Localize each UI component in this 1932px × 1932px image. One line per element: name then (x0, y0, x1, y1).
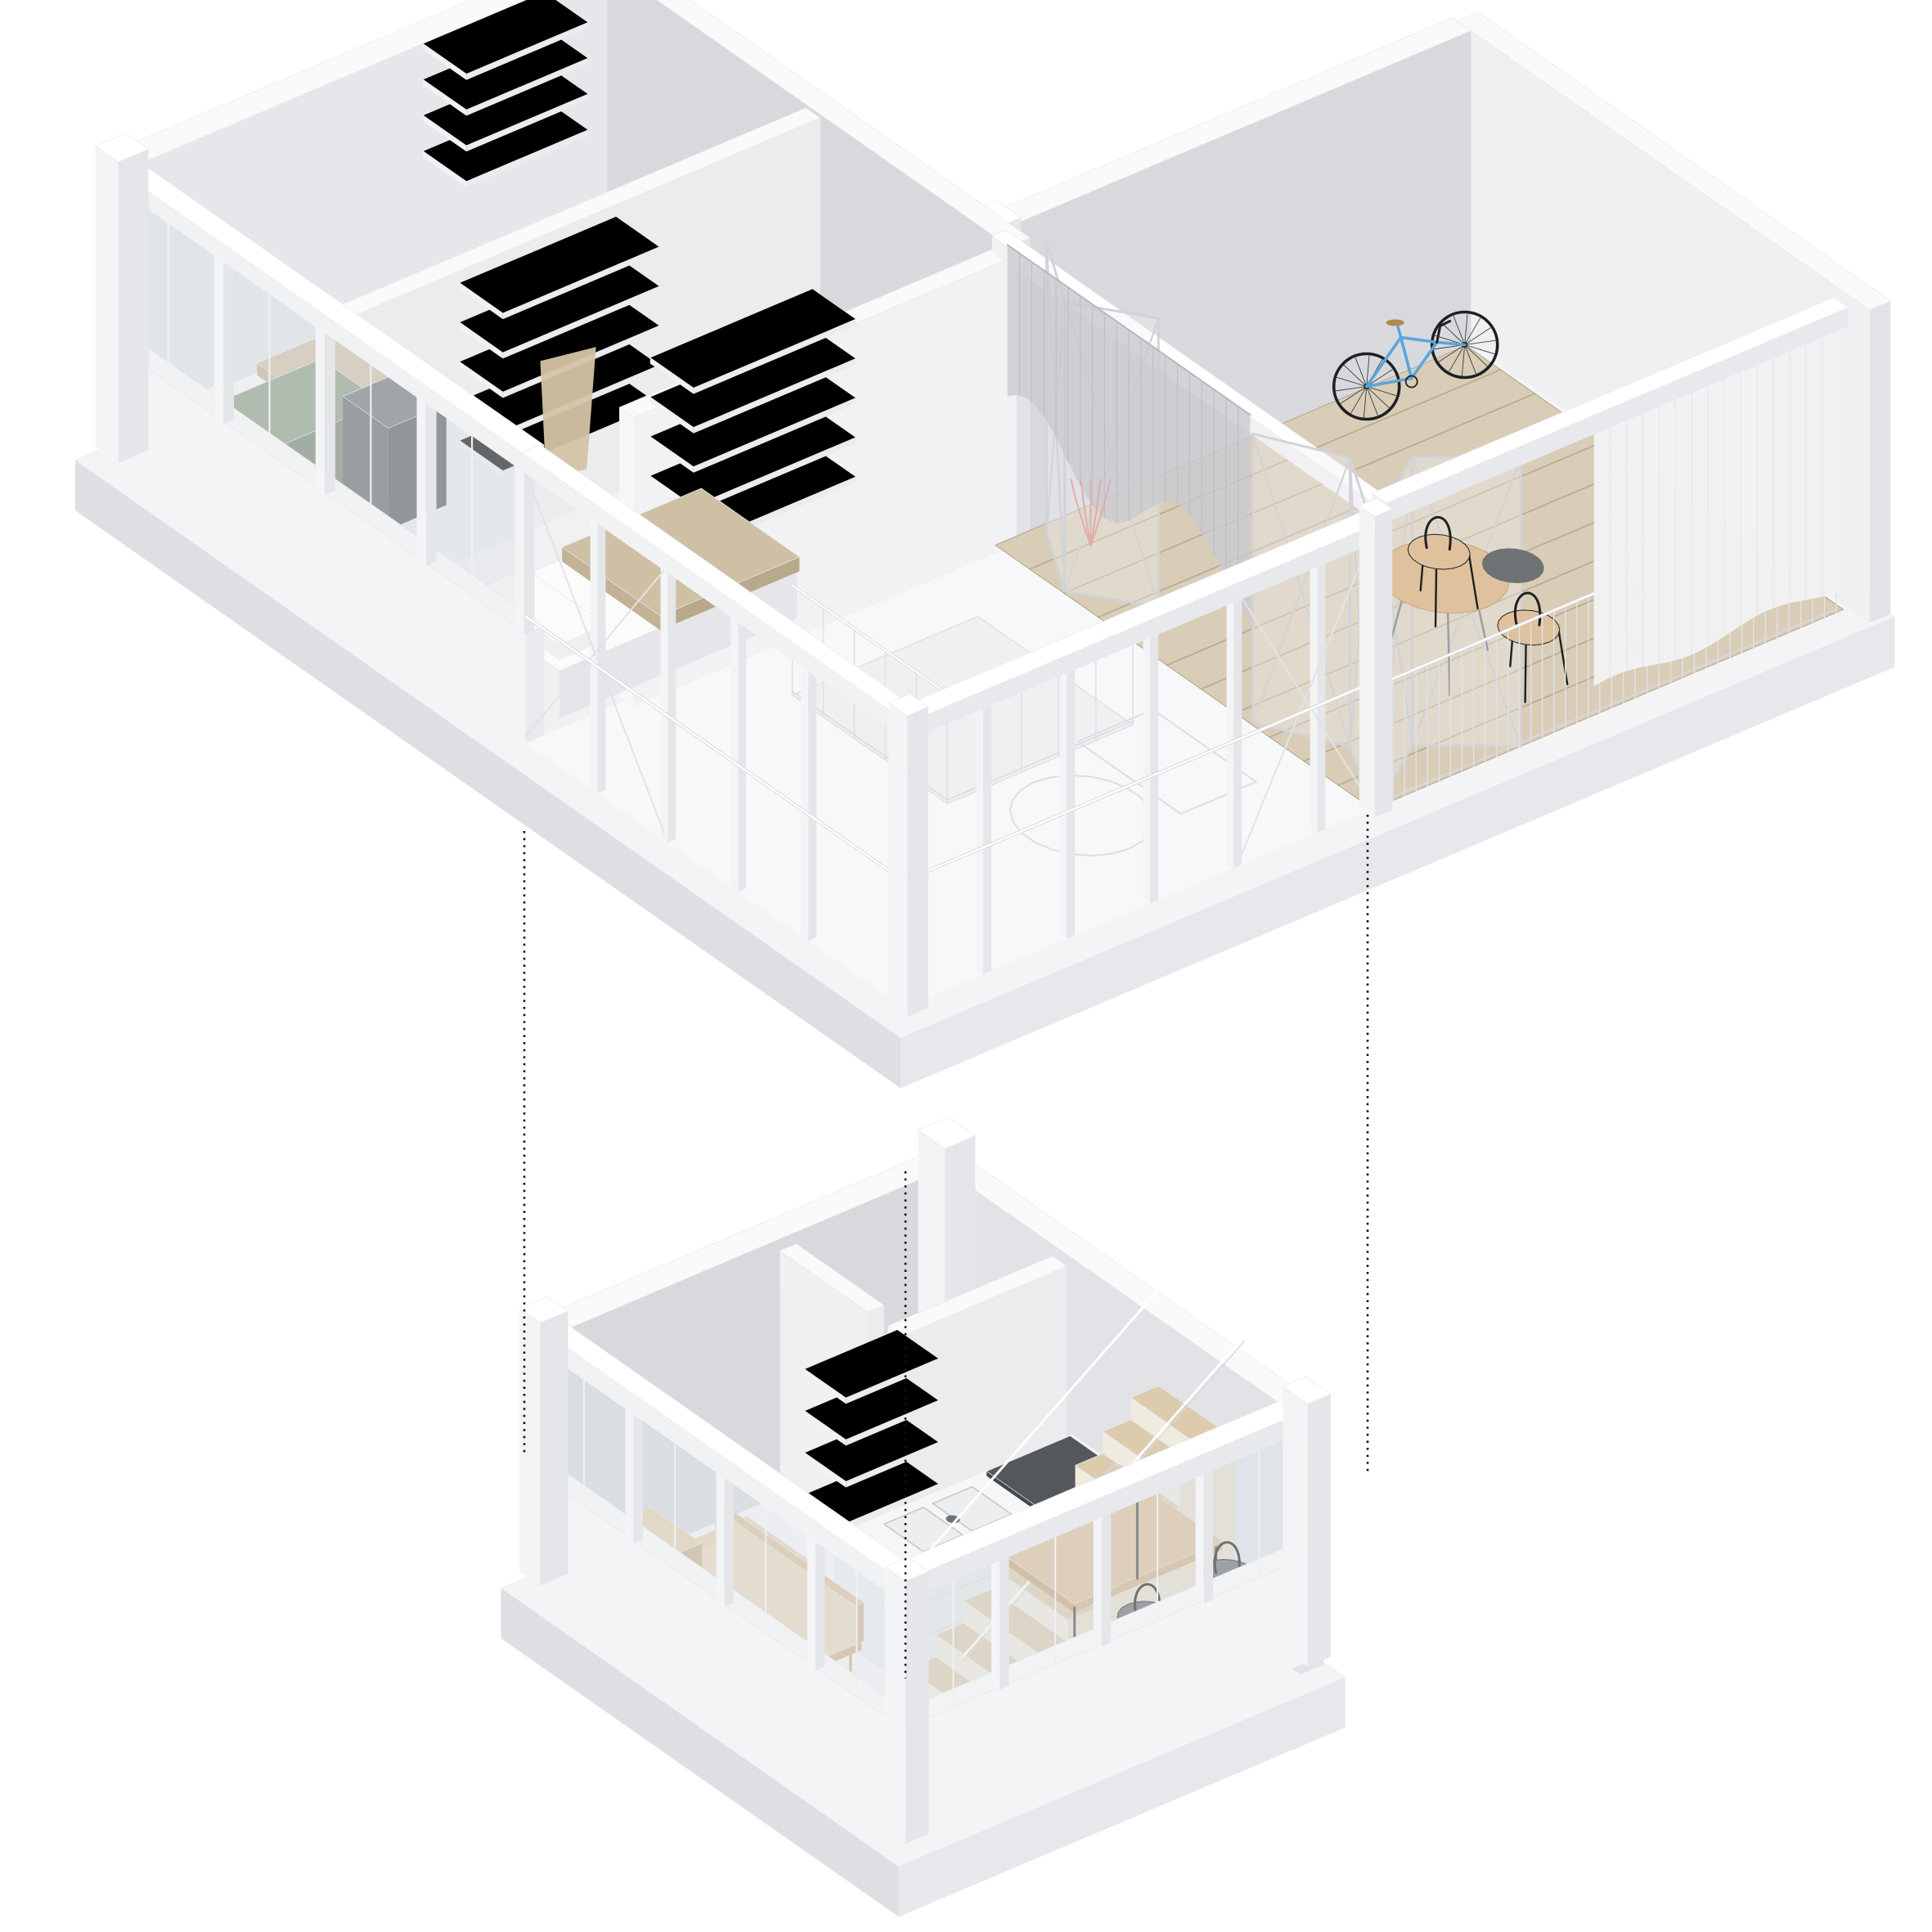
module-corner-post (885, 1557, 929, 1844)
architectural-diagram (0, 0, 1932, 1932)
terrace-corner-post (1359, 498, 1392, 817)
axonometric-drawing (0, 0, 1932, 1932)
lower-module (501, 1117, 1346, 1917)
module-right-pilaster (1283, 1377, 1331, 1666)
module-left-pilaster (519, 1296, 568, 1585)
front-corner-post (889, 694, 928, 1017)
upper-floor (75, 0, 1894, 1088)
wing-end-pilaster (96, 133, 149, 463)
